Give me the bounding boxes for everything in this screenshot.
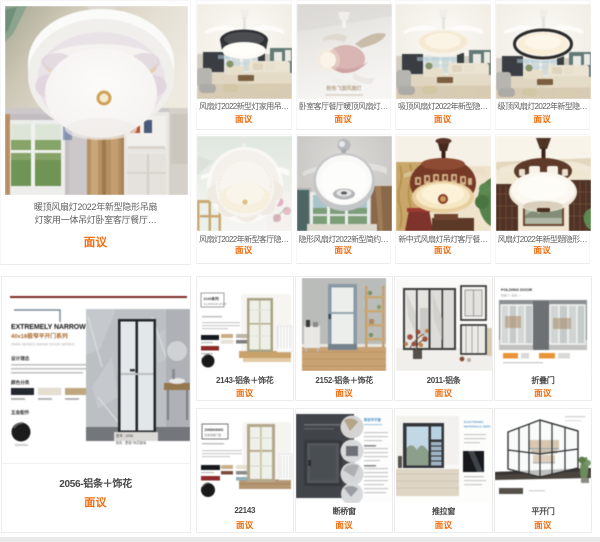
svg-text:40x18极窄平开门系列: 40x18极窄平开门系列 (11, 332, 68, 340)
svg-text:粉色飞旋风扇灯: 粉色飞旋风扇灯 (326, 85, 361, 92)
svg-text:ELECTRONIC: ELECTRONIC (464, 420, 484, 424)
svg-text:断桥平开窗: 断桥平开窗 (364, 417, 382, 422)
svg-text:颜色 : 黑框+饰花玻璃: 颜色 : 黑框+饰花玻璃 (116, 440, 147, 445)
svg-text:型号 : 2056: 型号 : 2056 (116, 433, 133, 438)
svg-text:2143系列: 2143系列 (204, 296, 220, 301)
svg-text:颜色分类: 颜色分类 (11, 379, 30, 386)
svg-text:五金配件: 五金配件 (11, 409, 30, 416)
svg-text:智尚系统门窗: 智尚系统门窗 (205, 433, 222, 437)
svg-text:折叠门 / 系列 —: 折叠门 / 系列 — (501, 294, 521, 298)
svg-text:ZHISHANG: ZHISHANG (205, 428, 224, 432)
svg-text:设计理念: 设计理念 (11, 355, 30, 362)
svg-text:MATERIALS USED: MATERIALS USED (464, 424, 491, 428)
svg-text:ALUMINIUM DOOR: ALUMINIUM DOOR (204, 302, 227, 306)
svg-text:OWNI SERIES-SWING DOOR SERIES: OWNI SERIES-SWING DOOR SERIES (11, 343, 75, 347)
svg-text:EXTREMELY NARROW: EXTREMELY NARROW (11, 324, 86, 331)
svg-text:FOLDING DOOR: FOLDING DOOR (501, 287, 532, 292)
